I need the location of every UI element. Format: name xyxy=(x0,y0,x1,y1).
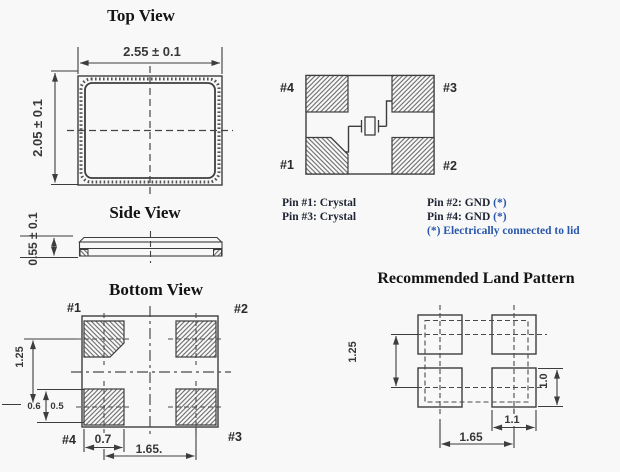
bottom-view-pin3-label: #3 xyxy=(228,430,242,444)
side-pad-left xyxy=(80,250,88,257)
bottom-view-pin4-label: #4 xyxy=(62,433,76,447)
land-pattern-centerlines xyxy=(409,305,547,417)
bottom-view-row-pitch-label: 1.25 xyxy=(14,346,26,367)
top-view-width-dim-label: 2.55 ± 0.1 xyxy=(123,44,181,59)
side-view-package-body xyxy=(80,231,223,263)
schematic-pin2-label: #2 xyxy=(443,159,457,173)
pin-function-list: Pin #1: Crystal Pin #3: Crystal Pin #2: … xyxy=(282,197,580,237)
top-view-height-dim-lines xyxy=(51,71,78,185)
side-view-title: Side View xyxy=(109,203,181,222)
lid-connection-note: (*) Electrically connected to lid xyxy=(427,225,580,237)
bottom-view-pin1-label: #1 xyxy=(67,301,81,315)
land-row-pitch-lines xyxy=(391,335,418,388)
top-view-package-body xyxy=(67,66,233,196)
schematic-pad-3 xyxy=(392,76,434,113)
bottom-view-row-pitch-lines xyxy=(24,339,76,403)
bottom-view-col-pitch-label: 1.65. xyxy=(136,442,163,456)
top-view-height-dim-label: 2.05 ± 0.1 xyxy=(30,99,45,157)
pin2-function: Pin #2: GND (*) xyxy=(427,197,507,209)
bottom-view-section: Bottom View #1 #2 #4 #3 1.25 0.6 0.5 0.7 xyxy=(2,280,248,460)
top-view-section: Top View 2.55 ± 0.1 2.05 ± 0.1 xyxy=(30,6,233,196)
schematic-pad-1-chamfered xyxy=(306,138,348,175)
land-pad-height-label: 1.0 xyxy=(538,373,550,388)
wire-crystal-to-pin1 xyxy=(346,126,349,152)
datasheet-drawing-page: Top View 2.55 ± 0.1 2.05 ± 0.1 Side View… xyxy=(0,0,620,472)
crystal-symbol xyxy=(349,117,387,135)
land-pattern-section: Recommended Land Pattern 1.25 1.0 1.1 1.… xyxy=(347,270,575,448)
pin-schematic-section: #4 #3 #1 #2 xyxy=(280,76,457,175)
package-drawing-svg: Top View 2.55 ± 0.1 2.05 ± 0.1 Side View… xyxy=(0,0,620,472)
schematic-pin1-label: #1 xyxy=(280,158,294,172)
schematic-pin4-label: #4 xyxy=(280,81,294,95)
schematic-pad-4 xyxy=(306,76,348,113)
top-view-title: Top View xyxy=(107,6,176,25)
bottom-view-dim-06-label: 0.6 xyxy=(27,401,40,412)
pin1-function: Pin #1: Crystal xyxy=(282,197,356,209)
side-pad-right xyxy=(214,250,222,257)
bottom-view-pad-width-label: 0.7 xyxy=(95,432,112,446)
schematic-pin3-label: #3 xyxy=(443,81,457,95)
top-view-centerlines xyxy=(67,66,233,196)
land-pad-width-label: 1.1 xyxy=(504,414,519,426)
land-col-pitch-label: 1.65 xyxy=(459,430,483,444)
bottom-view-pin2-label: #2 xyxy=(234,302,248,316)
pin4-function: Pin #4: GND (*) xyxy=(427,211,507,223)
side-view-section: Side View 0.55 ± 0.1 xyxy=(20,203,222,266)
land-pattern-title: Recommended Land Pattern xyxy=(377,270,574,287)
land-row-pitch-label: 1.25 xyxy=(347,341,359,362)
bottom-view-title: Bottom View xyxy=(109,280,204,299)
wire-crystal-to-pin3 xyxy=(387,101,393,126)
schematic-pad-2 xyxy=(392,138,434,175)
pin3-function: Pin #3: Crystal xyxy=(282,211,356,223)
bottom-view-dim-05-label: 0.5 xyxy=(50,401,64,412)
